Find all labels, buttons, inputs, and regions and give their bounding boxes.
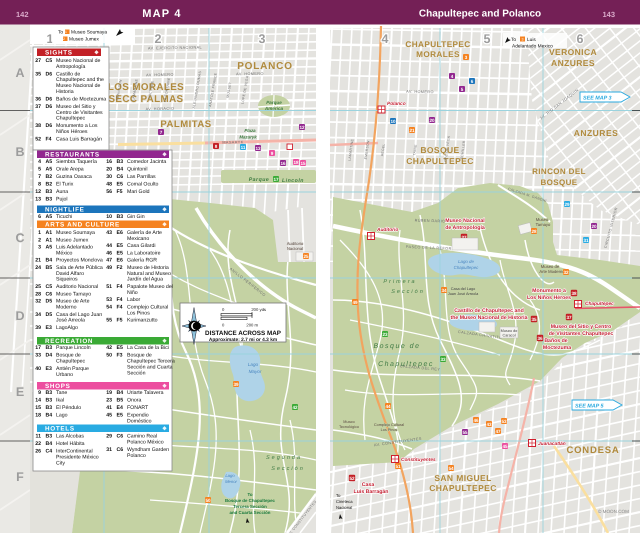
- svg-text:29: 29: [106, 434, 112, 440]
- svg-text:ANZURES: ANZURES: [551, 58, 595, 68]
- svg-text:Los Pinos: Los Pinos: [127, 310, 150, 316]
- svg-text:Gin Gin: Gin Gin: [127, 214, 145, 220]
- svg-text:F2: F2: [117, 265, 123, 271]
- svg-text:NIGHTLIFE: NIGHTLIFE: [45, 206, 85, 213]
- svg-text:43: 43: [106, 230, 112, 236]
- svg-text:El Péndulo: El Péndulo: [56, 405, 81, 411]
- svg-text:21: 21: [35, 258, 41, 264]
- svg-text:3: 3: [522, 38, 524, 42]
- svg-text:Tane: Tane: [56, 390, 67, 396]
- svg-text:E4: E4: [117, 405, 123, 411]
- svg-text:200 m: 200 m: [246, 323, 258, 328]
- svg-text:Complejo Cultural: Complejo Cultural: [374, 423, 404, 427]
- svg-text:Auna: Auna: [56, 189, 68, 195]
- svg-text:Museo del Sitio y Centro: Museo del Sitio y Centro: [551, 324, 612, 330]
- svg-text:C5: C5: [46, 284, 53, 290]
- svg-text:B3: B3: [46, 434, 53, 440]
- svg-text:México: México: [56, 250, 73, 256]
- svg-text:5: 5: [38, 167, 41, 173]
- svg-text:45: 45: [502, 444, 508, 449]
- svg-text:15: 15: [35, 405, 41, 411]
- svg-text:30: 30: [106, 174, 112, 180]
- svg-text:ARTS AND CULTURE: ARTS AND CULTURE: [45, 221, 120, 228]
- svg-text:53: 53: [501, 419, 507, 424]
- svg-text:8: 8: [215, 144, 218, 149]
- svg-text:Lincoln: Lincoln: [282, 178, 304, 184]
- svg-text:To: To: [247, 492, 252, 497]
- svg-text:Polanco: Polanco: [127, 453, 146, 459]
- svg-text:32: 32: [563, 270, 569, 275]
- svg-text:26: 26: [35, 449, 41, 455]
- svg-text:Mayor: Mayor: [249, 369, 262, 374]
- svg-text:B4: B4: [46, 258, 53, 264]
- svg-text:B3: B3: [46, 390, 53, 396]
- svg-text:4: 4: [38, 159, 41, 165]
- svg-text:49: 49: [352, 300, 358, 305]
- svg-text:C4: C4: [46, 449, 53, 455]
- svg-text:Casa del Lago: Casa del Lago: [451, 287, 476, 291]
- svg-text:20: 20: [106, 167, 112, 173]
- svg-text:5: 5: [461, 87, 464, 92]
- svg-text:28: 28: [531, 229, 537, 234]
- svg-text:Antropología: Antropología: [56, 64, 86, 70]
- svg-text:Proyectos Monclova: Proyectos Monclova: [56, 258, 103, 264]
- svg-text:and Cuarta Sección: and Cuarta Sección: [230, 510, 271, 515]
- svg-text:39: 39: [233, 382, 239, 387]
- svg-text:42: 42: [106, 345, 112, 351]
- svg-text:Historia: Historia: [56, 89, 74, 95]
- svg-text:Adelantado Mexico: Adelantado Mexico: [512, 44, 553, 50]
- svg-text:A: A: [15, 66, 24, 80]
- svg-text:E3: E3: [46, 325, 52, 331]
- svg-text:52: 52: [35, 136, 41, 142]
- svg-text:SIGHTS: SIGHTS: [45, 49, 73, 56]
- svg-text:Casa Luis Barragán: Casa Luis Barragán: [56, 136, 102, 142]
- svg-text:38: 38: [571, 291, 577, 296]
- svg-text:RINCON DEL: RINCON DEL: [532, 167, 586, 176]
- svg-text:10: 10: [390, 119, 396, 124]
- svg-text:200 yds: 200 yds: [251, 307, 266, 312]
- svg-text:E: E: [16, 385, 24, 399]
- svg-text:SEE MAP 5: SEE MAP 5: [575, 403, 605, 409]
- svg-text:RESTAURANTS: RESTAURANTS: [45, 151, 100, 158]
- svg-text:25: 25: [35, 284, 41, 290]
- svg-text:Guzina Oaxaca: Guzina Oaxaca: [56, 174, 92, 180]
- svg-text:Constituyentes: Constituyentes: [401, 457, 436, 463]
- svg-text:16: 16: [280, 161, 286, 166]
- svg-text:Bosque de: Bosque de: [374, 342, 421, 350]
- svg-text:Primera: Primera: [383, 279, 416, 285]
- svg-text:Museo Soumaya: Museo Soumaya: [71, 30, 107, 36]
- svg-text:ANZURES: ANZURES: [574, 128, 619, 138]
- svg-text:F4: F4: [46, 136, 52, 142]
- svg-text:34: 34: [441, 288, 447, 293]
- svg-text:7: 7: [160, 130, 163, 135]
- svg-text:47: 47: [106, 258, 112, 264]
- svg-text:Niño: Niño: [127, 290, 138, 296]
- svg-text:AV. HOMERO: AV. HOMERO: [406, 90, 434, 94]
- svg-text:19: 19: [106, 390, 112, 396]
- svg-text:37: 37: [566, 315, 572, 320]
- svg-text:E3: E3: [46, 366, 52, 372]
- svg-text:3: 3: [465, 55, 468, 60]
- svg-text:the Museo Nacional de Historia: the Museo Nacional de Historia: [451, 315, 528, 321]
- svg-text:F5: F5: [117, 318, 123, 324]
- svg-text:Sección: Sección: [271, 465, 305, 472]
- svg-text:16: 16: [106, 159, 112, 165]
- svg-text:F: F: [16, 470, 24, 484]
- svg-text:Los Pinos: Los Pinos: [381, 428, 398, 432]
- svg-text:15: 15: [300, 161, 306, 166]
- svg-text:7: 7: [38, 174, 41, 180]
- svg-text:25: 25: [303, 254, 309, 259]
- svg-text:A5: A5: [46, 167, 53, 173]
- svg-text:D6: D6: [46, 123, 53, 129]
- svg-text:13: 13: [35, 197, 41, 203]
- svg-text:D6: D6: [46, 104, 53, 110]
- svg-text:E5: E5: [117, 250, 123, 256]
- svg-text:C6: C6: [46, 291, 53, 297]
- svg-text:SHOPS: SHOPS: [45, 383, 71, 390]
- svg-text:38: 38: [35, 123, 41, 129]
- svg-text:36: 36: [537, 336, 543, 341]
- svg-text:Museo Jumex: Museo Jumex: [56, 237, 89, 243]
- svg-text:Parque Lincoln: Parque Lincoln: [56, 345, 91, 351]
- svg-text:E5: E5: [117, 182, 123, 188]
- svg-text:B4: B4: [117, 167, 124, 173]
- svg-text:6: 6: [471, 79, 474, 84]
- svg-text:44: 44: [385, 404, 391, 409]
- svg-text:11: 11: [241, 145, 246, 150]
- svg-text:B2: B2: [46, 182, 53, 188]
- svg-text:Siqueiros: Siqueiros: [56, 277, 78, 283]
- svg-text:Museo Soumaya: Museo Soumaya: [56, 230, 95, 236]
- svg-text:FONART: FONART: [127, 405, 149, 411]
- svg-text:Galería RGR: Galería RGR: [127, 258, 157, 264]
- svg-text:Chapultepec: Chapultepec: [585, 301, 614, 307]
- svg-text:55: 55: [462, 430, 468, 435]
- svg-text:Menor: Menor: [225, 479, 237, 484]
- svg-text:VERONICA: VERONICA: [549, 47, 597, 57]
- svg-text:D5: D5: [46, 299, 53, 305]
- svg-text:PALMITAS: PALMITAS: [160, 119, 211, 130]
- svg-text:D4: D4: [46, 353, 53, 359]
- svg-text:Museo Jumex: Museo Jumex: [69, 37, 99, 43]
- svg-text:20: 20: [429, 118, 435, 123]
- svg-text:D6: D6: [46, 96, 53, 102]
- svg-text:22: 22: [35, 441, 41, 447]
- svg-text:9: 9: [38, 390, 41, 396]
- svg-text:Cineteca: Cineteca: [336, 499, 353, 504]
- svg-text:Las Parrillas: Las Parrillas: [127, 174, 156, 180]
- svg-text:14: 14: [35, 398, 41, 404]
- svg-text:20: 20: [591, 224, 597, 229]
- svg-text:4: 4: [451, 74, 454, 79]
- svg-text:B3: B3: [46, 398, 53, 404]
- svg-text:CHAPULTEPEC: CHAPULTEPEC: [429, 483, 497, 493]
- svg-text:Parque: Parque: [266, 100, 282, 105]
- svg-text:B3: B3: [117, 214, 124, 220]
- svg-text:Kurimanzutto: Kurimanzutto: [127, 318, 158, 324]
- svg-text:E5: E5: [117, 413, 123, 419]
- svg-text:29: 29: [564, 202, 570, 207]
- svg-text:HOTELS: HOTELS: [45, 425, 75, 432]
- svg-text:Polanco: Polanco: [387, 101, 406, 107]
- svg-text:B4: B4: [117, 390, 124, 396]
- svg-text:Onora: Onora: [127, 398, 142, 404]
- svg-text:2: 2: [63, 37, 65, 41]
- svg-text:Plaza: Plaza: [244, 128, 256, 133]
- svg-text:E6: E6: [117, 258, 123, 264]
- svg-text:Ticuchi: Ticuchi: [56, 214, 72, 220]
- svg-text:28: 28: [35, 291, 41, 297]
- svg-text:54: 54: [448, 466, 454, 471]
- svg-text:Chapultepec: Chapultepec: [56, 359, 86, 365]
- svg-text:Uriarte Talavera: Uriarte Talavera: [127, 390, 164, 396]
- svg-text:Hotel Hábita: Hotel Hábita: [56, 441, 85, 447]
- svg-text:AV. HORACIO: AV. HORACIO: [146, 107, 175, 112]
- svg-text:Moderno: Moderno: [56, 304, 77, 310]
- svg-text:F4: F4: [117, 284, 123, 290]
- svg-text:9: 9: [271, 151, 274, 156]
- svg-text:AV. HOMERO: AV. HOMERO: [236, 72, 264, 76]
- svg-text:B2: B2: [46, 174, 53, 180]
- svg-text:31: 31: [106, 447, 112, 453]
- svg-text:Juan José Arreola: Juan José Arreola: [448, 292, 479, 296]
- svg-text:2: 2: [38, 237, 41, 243]
- svg-text:A1: A1: [46, 237, 53, 243]
- svg-text:3: 3: [38, 245, 41, 251]
- svg-text:Museo: Museo: [343, 420, 354, 424]
- svg-text:32: 32: [35, 299, 41, 305]
- svg-text:A5: A5: [46, 159, 53, 165]
- svg-text:53: 53: [106, 297, 112, 303]
- svg-text:33: 33: [35, 353, 41, 359]
- svg-text:Parque: Parque: [249, 177, 270, 183]
- svg-text:RECREATION: RECREATION: [45, 338, 93, 345]
- svg-text:Arte Moderno: Arte Moderno: [539, 269, 565, 274]
- svg-text:55: 55: [106, 318, 112, 324]
- svg-text:CHAPULTEPEC: CHAPULTEPEC: [405, 40, 470, 49]
- svg-text:Mexicano: Mexicano: [127, 236, 149, 242]
- svg-text:Approximate: 2.7 mi or 4.3 km: Approximate: 2.7 mi or 4.3 km: [209, 337, 277, 343]
- svg-text:El Turix: El Turix: [56, 182, 74, 188]
- svg-text:143: 143: [602, 10, 615, 19]
- svg-text:Jardín del Agua: Jardín del Agua: [127, 277, 163, 283]
- svg-text:Lago: Lago: [225, 473, 235, 478]
- svg-text:6: 6: [38, 214, 41, 220]
- svg-text:5: 5: [484, 32, 491, 46]
- svg-text:21: 21: [409, 128, 415, 133]
- svg-text:51: 51: [106, 284, 112, 290]
- svg-text:Comal Oculto: Comal Oculto: [127, 182, 159, 188]
- svg-text:F4: F4: [117, 304, 123, 310]
- svg-text:Los Niños Héroes: Los Niños Héroes: [527, 295, 571, 301]
- svg-text:D6: D6: [46, 71, 53, 77]
- svg-text:C: C: [15, 231, 24, 245]
- svg-text:Pujol: Pujol: [56, 197, 68, 203]
- svg-text:Segunda: Segunda: [266, 455, 302, 461]
- svg-text:18: 18: [293, 160, 299, 165]
- svg-text:31: 31: [583, 238, 589, 243]
- svg-text:La Casa de la Bici: La Casa de la Bici: [127, 345, 169, 351]
- svg-text:F5: F5: [117, 189, 123, 195]
- svg-text:E5: E5: [117, 243, 123, 249]
- svg-text:B5: B5: [117, 398, 124, 404]
- svg-text:Museo Nacional: Museo Nacional: [445, 218, 485, 224]
- svg-text:City: City: [56, 461, 65, 467]
- svg-text:17: 17: [273, 177, 279, 182]
- svg-text:37: 37: [35, 104, 41, 110]
- svg-text:B3: B3: [46, 345, 53, 351]
- svg-text:Comedor Jacinta: Comedor Jacinta: [127, 159, 166, 165]
- svg-text:23: 23: [382, 332, 388, 337]
- svg-text:Castillo de Chapultepec and: Castillo de Chapultepec and: [454, 308, 523, 314]
- svg-text:© MOON.COM: © MOON.COM: [598, 509, 629, 514]
- svg-text:Museo de: Museo de: [501, 329, 518, 333]
- svg-text:C6: C6: [117, 174, 124, 180]
- svg-text:34: 34: [35, 312, 41, 318]
- svg-text:Tercera Sección: Tercera Sección: [233, 504, 267, 509]
- svg-text:Casa Gilardi: Casa Gilardi: [127, 243, 156, 249]
- svg-text:Luis: Luis: [527, 37, 536, 43]
- svg-text:10: 10: [106, 214, 112, 220]
- svg-text:Tamayo: Tamayo: [536, 222, 551, 227]
- svg-text:49: 49: [106, 265, 112, 271]
- svg-text:13: 13: [255, 146, 261, 151]
- svg-text:11: 11: [36, 434, 42, 440]
- svg-text:E6: E6: [117, 230, 123, 236]
- svg-text:To: To: [511, 37, 516, 43]
- svg-text:Labor: Labor: [127, 297, 141, 303]
- svg-text:6: 6: [577, 32, 584, 46]
- svg-text:43: 43: [486, 422, 492, 427]
- svg-text:Doméstico: Doméstico: [127, 419, 152, 425]
- svg-text:de Antropología: de Antropología: [445, 225, 485, 231]
- svg-text:Baños de: Baños de: [544, 338, 567, 344]
- svg-text:35: 35: [531, 317, 537, 322]
- svg-text:A5: A5: [46, 245, 53, 251]
- svg-text:Orale Arepa: Orale Arepa: [56, 167, 84, 173]
- svg-text:50: 50: [106, 353, 112, 359]
- svg-text:18: 18: [35, 413, 41, 419]
- svg-text:MAP 4: MAP 4: [142, 8, 181, 20]
- svg-text:Chapultepec and Polanco: Chapultepec and Polanco: [419, 9, 541, 20]
- svg-text:C5: C5: [46, 58, 53, 64]
- svg-text:36: 36: [35, 96, 41, 102]
- svg-text:Lago: Lago: [248, 362, 259, 367]
- svg-text:Sección: Sección: [127, 371, 146, 377]
- svg-text:Las Alcobas: Las Alcobas: [56, 434, 84, 440]
- svg-text:E5: E5: [117, 345, 123, 351]
- svg-text:44: 44: [106, 243, 112, 249]
- svg-text:Baños de Moctezuma: Baños de Moctezuma: [56, 96, 106, 102]
- svg-text:C6: C6: [117, 447, 124, 453]
- svg-text:50: 50: [205, 498, 211, 503]
- svg-text:Juanacatlán: Juanacatlán: [538, 441, 566, 447]
- svg-text:8: 8: [38, 182, 41, 188]
- svg-text:1: 1: [65, 30, 67, 34]
- svg-text:Chapultepec: Chapultepec: [454, 265, 479, 270]
- svg-text:Nacional: Nacional: [336, 505, 352, 510]
- svg-text:D5: D5: [46, 312, 53, 318]
- svg-text:D: D: [15, 309, 24, 323]
- svg-text:2: 2: [155, 32, 162, 46]
- svg-text:Luis Barragán: Luis Barragán: [354, 489, 389, 495]
- svg-text:F4: F4: [117, 297, 123, 303]
- svg-text:José Arreola: José Arreola: [56, 318, 85, 324]
- svg-text:Auditorio: Auditorio: [376, 227, 398, 233]
- svg-text:Ikal: Ikal: [56, 398, 64, 404]
- svg-text:AV. HOMERO: AV. HOMERO: [146, 73, 174, 78]
- svg-text:C6: C6: [117, 434, 124, 440]
- svg-text:Quintonil: Quintonil: [127, 167, 147, 173]
- svg-text:3: 3: [259, 32, 266, 46]
- svg-text:BOSQUE: BOSQUE: [540, 178, 577, 187]
- svg-text:Urbano: Urbano: [56, 372, 73, 378]
- svg-text:Auditorio Nacional: Auditorio Nacional: [56, 284, 98, 290]
- svg-text:142: 142: [16, 10, 29, 19]
- svg-text:A5: A5: [46, 214, 53, 220]
- svg-text:Nacional: Nacional: [287, 246, 303, 251]
- svg-text:17: 17: [35, 345, 41, 351]
- svg-text:Sección: Sección: [391, 288, 425, 295]
- svg-text:Casa: Casa: [362, 482, 375, 488]
- svg-text:B3: B3: [46, 189, 53, 195]
- svg-text:Siembra Taquería: Siembra Taquería: [56, 159, 97, 165]
- svg-text:42: 42: [292, 405, 298, 410]
- svg-text:1: 1: [38, 230, 41, 236]
- svg-text:B3: B3: [46, 405, 53, 411]
- svg-text:51: 51: [395, 464, 401, 469]
- svg-text:46: 46: [106, 250, 112, 256]
- svg-text:Niños Héroes: Niños Héroes: [56, 129, 88, 135]
- svg-text:24: 24: [35, 265, 41, 271]
- svg-text:Lago: Lago: [56, 413, 68, 419]
- svg-text:Lago de: Lago de: [458, 259, 474, 264]
- svg-text:La Laboratoire: La Laboratoire: [127, 250, 161, 256]
- svg-text:B3: B3: [46, 197, 53, 203]
- svg-text:Polanco México: Polanco México: [127, 440, 164, 446]
- svg-text:B5: B5: [46, 265, 53, 271]
- svg-text:BOSQUE: BOSQUE: [420, 145, 459, 155]
- svg-text:SAN MIGUEL: SAN MIGUEL: [434, 473, 491, 483]
- svg-text:Tecnológico: Tecnológico: [339, 425, 359, 429]
- svg-text:46: 46: [473, 418, 479, 423]
- svg-text:MORALES: MORALES: [416, 50, 460, 59]
- svg-text:A1: A1: [46, 230, 53, 236]
- svg-text:Monumento a: Monumento a: [532, 288, 566, 294]
- svg-text:Bosque de Chapultepec: Bosque de Chapultepec: [225, 498, 276, 503]
- svg-text:B3: B3: [117, 159, 124, 165]
- svg-text:CONDESA: CONDESA: [566, 445, 619, 456]
- svg-text:56: 56: [106, 189, 112, 195]
- svg-text:39: 39: [35, 325, 41, 331]
- svg-text:45: 45: [106, 413, 112, 419]
- svg-text:B: B: [15, 145, 24, 159]
- svg-text:B4: B4: [46, 441, 53, 447]
- svg-text:54: 54: [106, 304, 112, 310]
- svg-text:B4: B4: [46, 413, 53, 419]
- svg-text:Caracol: Caracol: [502, 334, 515, 338]
- svg-text:47: 47: [495, 429, 501, 434]
- svg-text:40: 40: [35, 366, 41, 372]
- svg-text:41: 41: [106, 405, 112, 411]
- svg-text:de Visitantes Chapultepec: de Visitantes Chapultepec: [549, 331, 614, 337]
- svg-text:SEE MAP 3: SEE MAP 3: [583, 95, 612, 101]
- svg-text:12: 12: [299, 125, 305, 130]
- svg-text:48: 48: [106, 182, 112, 188]
